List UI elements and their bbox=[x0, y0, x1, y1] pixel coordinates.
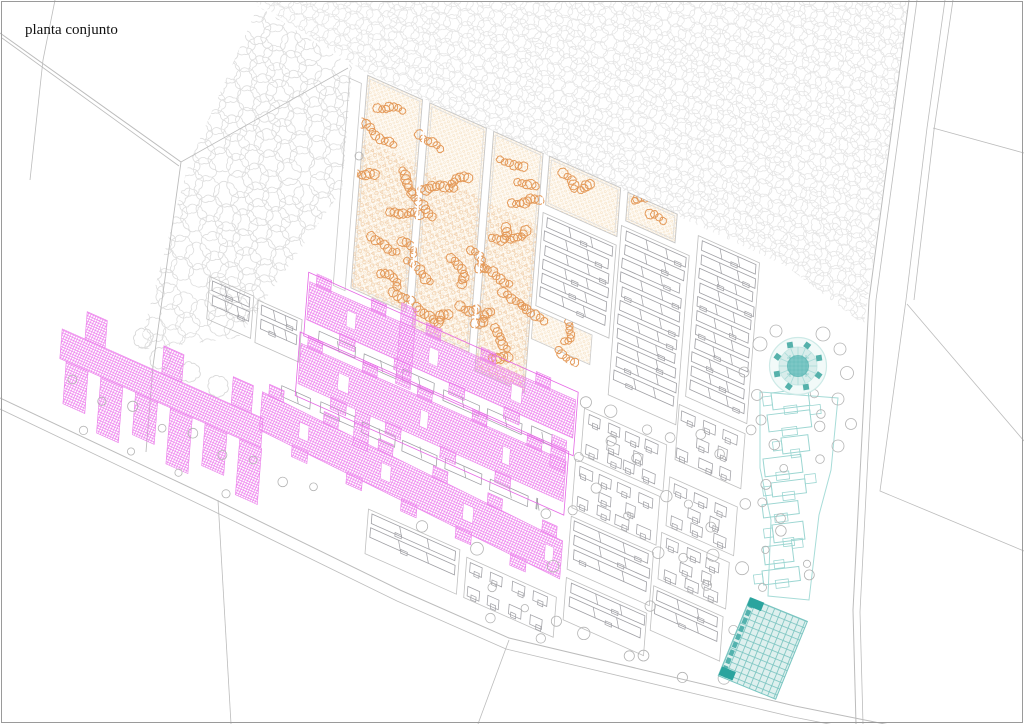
svg-text:planta conjunto: planta conjunto bbox=[25, 22, 118, 38]
